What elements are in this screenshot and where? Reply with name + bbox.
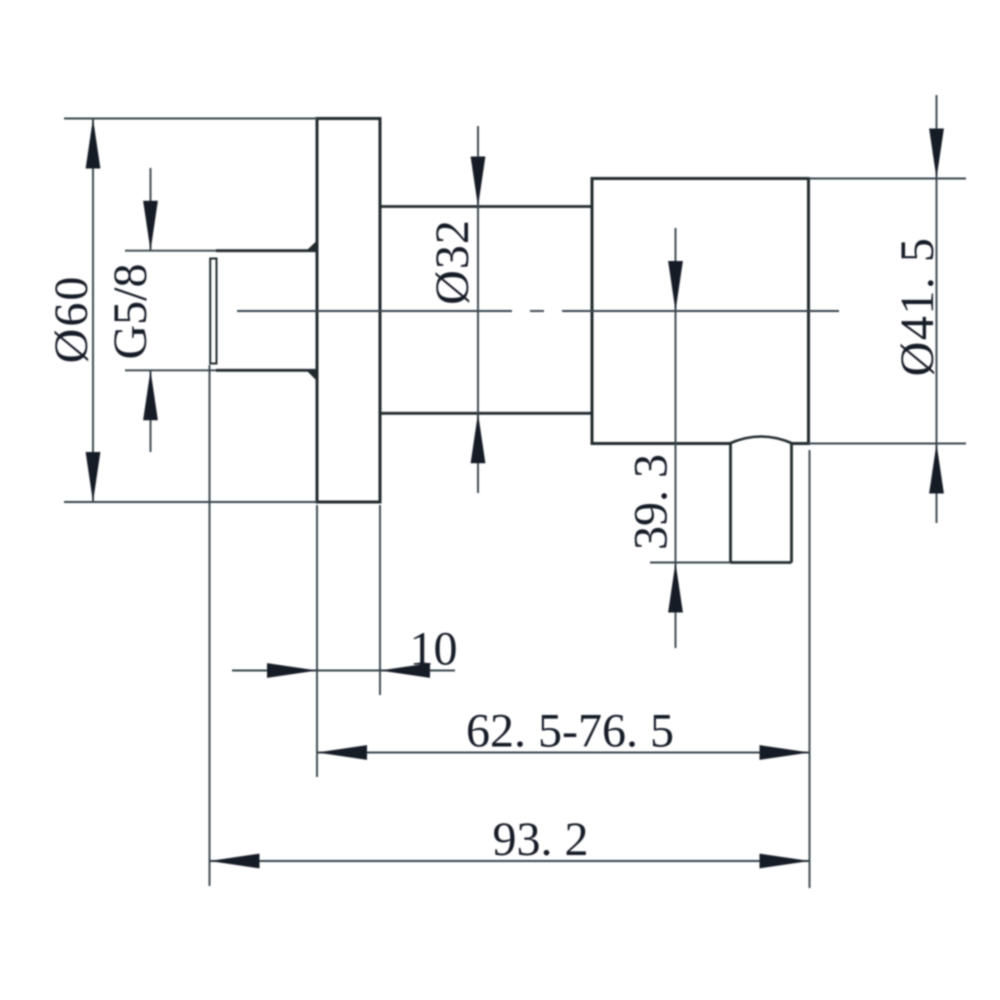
svg-text:Ø41. 5: Ø41. 5 — [891, 237, 944, 377]
svg-text:39. 3: 39. 3 — [625, 454, 678, 550]
svg-text:62. 5-76. 5: 62. 5-76. 5 — [466, 705, 674, 758]
svg-text:Ø32: Ø32 — [426, 219, 479, 305]
svg-text:Ø60: Ø60 — [45, 275, 98, 364]
svg-text:10: 10 — [410, 623, 458, 676]
svg-text:G5/8: G5/8 — [104, 264, 157, 360]
svg-text:93. 2: 93. 2 — [493, 813, 589, 866]
